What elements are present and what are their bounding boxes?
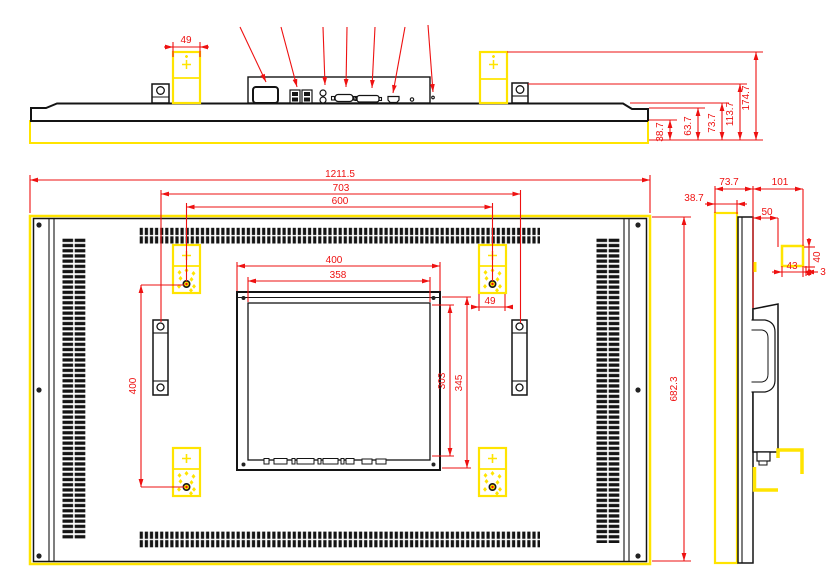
dim-label: 303: [437, 372, 448, 389]
wall-bracket-top-right: [480, 52, 507, 103]
dim-rail-depth: 50: [753, 207, 778, 247]
vent-left: [62, 238, 86, 540]
dim-label: 49: [180, 35, 192, 46]
dim-label: 73.7: [707, 113, 718, 133]
dim-label: 345: [454, 374, 465, 391]
dim-label: 600: [332, 196, 349, 207]
side-view: 73.7 101 38.7 50 40: [684, 177, 826, 563]
dim-overall-height: 682.3: [652, 217, 691, 561]
wall-bracket-rear-bottom-right: [479, 448, 506, 496]
wall-bracket-top-left: [173, 52, 200, 103]
vent-bottom: [139, 531, 540, 548]
lower-hook-section: [755, 467, 779, 490]
panel-section: [715, 213, 737, 563]
vga-connector: [332, 95, 357, 102]
dim-label: 358: [330, 270, 347, 281]
power-inlet: [253, 87, 278, 103]
hanger-bracket-top-left: [152, 84, 169, 103]
dim-label: 50: [761, 207, 773, 218]
dvi-connector: [355, 96, 382, 103]
front-bezel-band: [30, 121, 648, 143]
hanger-bracket-top-right: [512, 83, 528, 103]
wall-hook-section: [778, 450, 802, 474]
wall-bracket-rear-bottom-left: [173, 448, 200, 496]
plate-connector-cutouts: [264, 459, 386, 465]
dim-label: 113.7: [725, 101, 736, 126]
dim-label: 38.7: [684, 193, 704, 204]
dim-label: 1211.5: [325, 169, 355, 180]
dim-hook-depth: 43: [772, 261, 813, 277]
rear-cover-profile: [31, 104, 648, 122]
dim-label: 101: [772, 177, 789, 188]
dim-label: 38.7: [655, 122, 666, 142]
hdmi-connector: [388, 97, 399, 103]
rear-view: 1211.5 703 600 400 358: [30, 169, 691, 564]
dim-label: 40: [812, 251, 823, 263]
dim-label: 43: [786, 261, 798, 272]
dim-label: 703: [333, 183, 350, 194]
dim-label: 682.3: [669, 376, 680, 401]
dim-label: 400: [326, 255, 343, 266]
mounting-plate: [237, 292, 440, 470]
hanger-bracket-rear-right: [512, 320, 527, 395]
top-view: 49 38.7 63.7 73.7 113.7: [30, 25, 763, 143]
dim-label: 3: [820, 267, 826, 278]
vent-right: [596, 238, 620, 543]
hanger-bracket-rear-left: [153, 320, 168, 395]
reset-hole: [432, 96, 435, 99]
monitor-dimension-drawing: 49 38.7 63.7 73.7 113.7: [0, 0, 835, 572]
dim-label: 174.7: [741, 85, 752, 110]
cad-drawing-page: 49 38.7 63.7 73.7 113.7: [0, 0, 835, 572]
dim-front-thickness: 38.7: [684, 193, 747, 214]
vent-top: [139, 227, 540, 244]
dim-label: 63.7: [683, 116, 694, 136]
dim-label: 73.7: [719, 177, 739, 188]
dim-label: 49: [484, 296, 496, 307]
dim-label: 400: [128, 377, 139, 394]
mount-rail-section: [752, 304, 779, 465]
rear-cover-section: [738, 217, 753, 563]
